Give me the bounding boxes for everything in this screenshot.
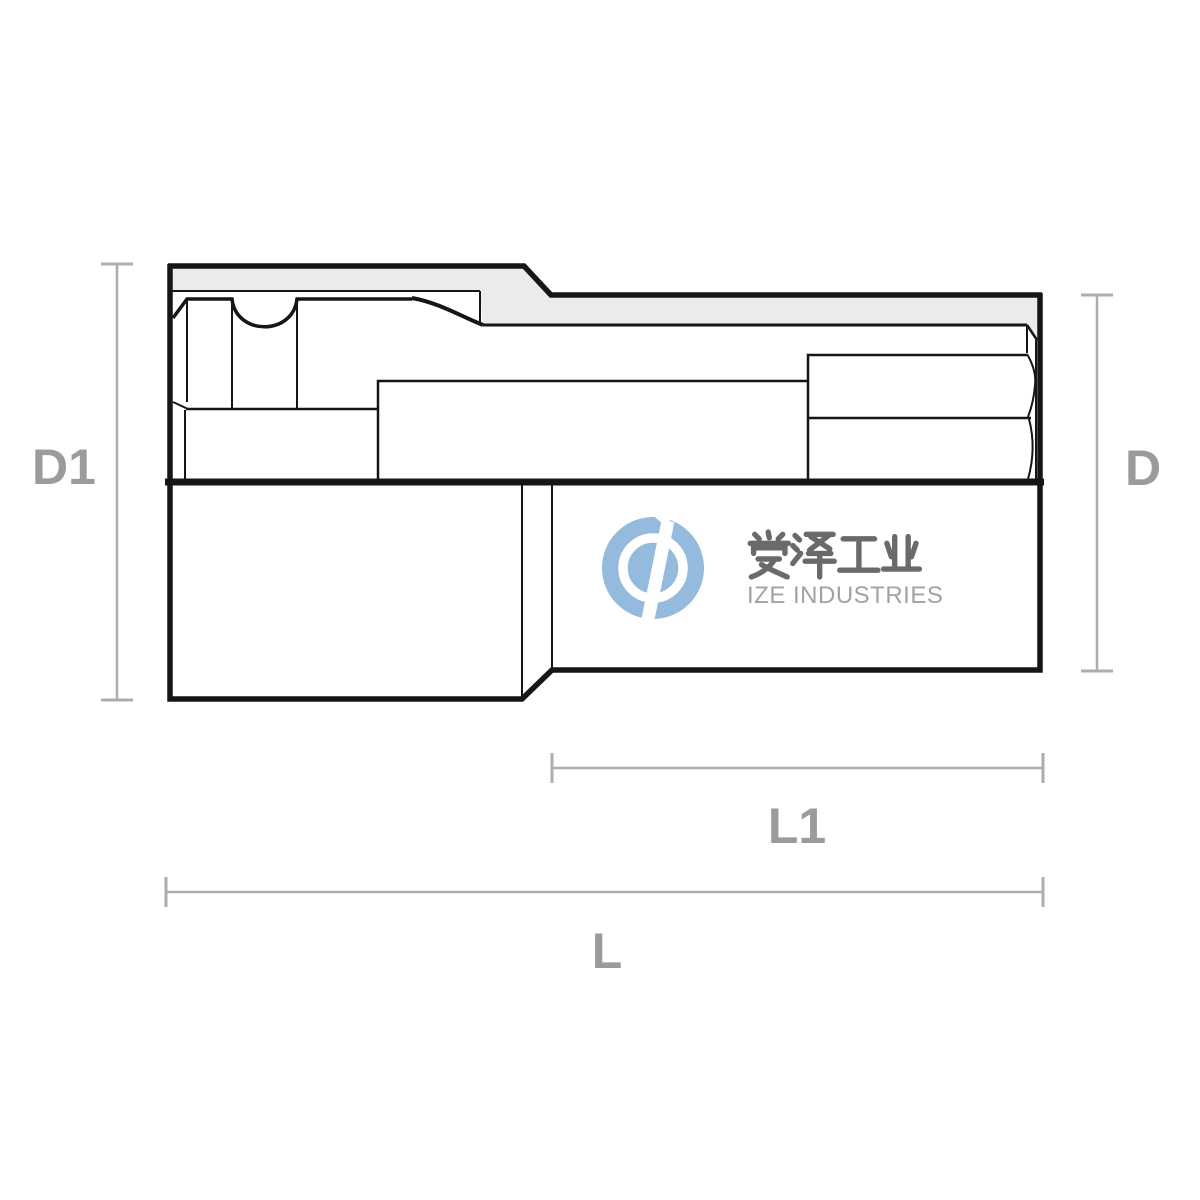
cjk-char-1 [750,532,788,577]
section-cut-fill [170,266,1041,339]
cjk-char-2 [793,534,834,577]
bore-funnel-curve [412,298,483,325]
cjk-char-3 [840,539,878,570]
drive-bore-profile-with-ball-groove [173,299,412,327]
dimension-labels: D1 D L1 L [32,439,1161,979]
drawing-canvas: D1 D L1 L IZE INDUSTRIES [0,0,1200,1200]
logo-cjk-wordmark [750,532,919,577]
dim-label-l: L [592,923,623,979]
logo-jaw-bottom [647,627,661,637]
logo-latin-wordmark: IZE INDUSTRIES [747,582,943,609]
section-fill-shape [170,266,1041,339]
dim-label-d: D [1125,440,1161,496]
cross-section-lines [165,264,1044,482]
cjk-char-4 [884,537,920,569]
dim-label-l1: L1 [768,798,826,854]
watermark-logo: IZE INDUSTRIES [602,512,943,637]
socket-technical-drawing: D1 D L1 L IZE INDUSTRIES [0,0,1200,1200]
dim-label-d1: D1 [32,439,96,495]
sleeve-rectangle [378,381,808,480]
bit-end-curve-lower [1028,419,1033,479]
drive-cavity-step [173,402,188,409]
bit-end-curve-upper [1027,354,1035,417]
